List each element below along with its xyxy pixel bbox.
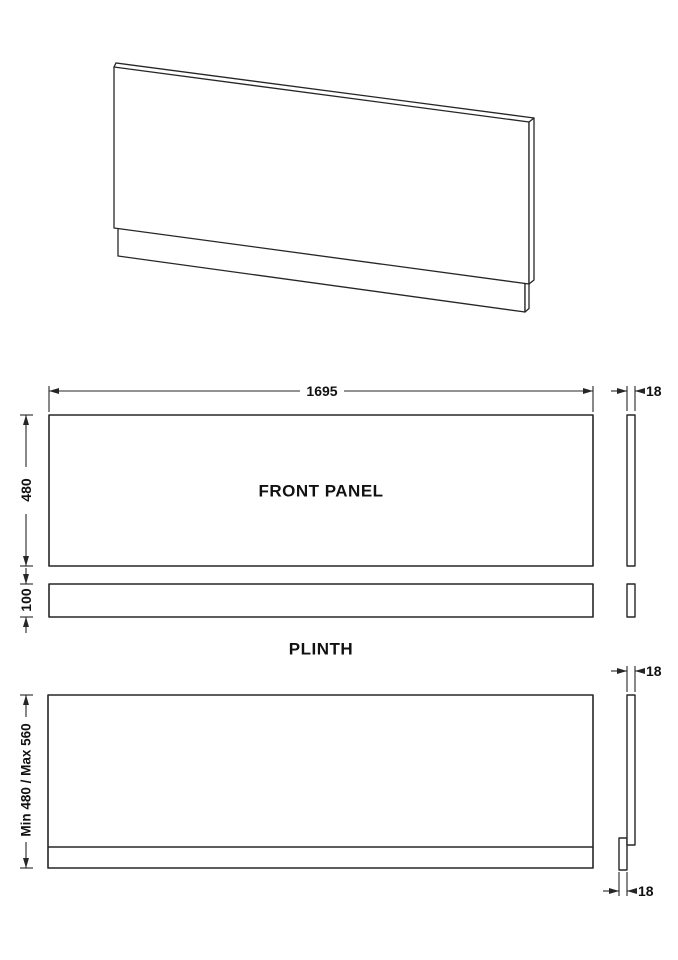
plinth-label: PLINTH [289, 640, 353, 659]
dim-assembled-height: Min 480 / Max 560 [19, 695, 34, 868]
plinth-rect [49, 584, 593, 617]
assembled-height-range-value: Min 480 / Max 560 [19, 723, 34, 836]
front-panel-label: FRONT PANEL [258, 482, 383, 501]
dim-front-panel-height: 480 [18, 415, 34, 566]
dim-assembled-panel-thickness: 18 [611, 663, 662, 692]
front-panel-width-value: 1695 [306, 383, 337, 399]
dim-front-panel-thickness: 18 [611, 383, 662, 411]
drawing-canvas: FRONT PANEL 1695 480 18 [0, 0, 678, 960]
assembled-front-view [48, 695, 593, 868]
front-panel-thickness-value: 18 [646, 383, 662, 399]
assembled-side-view [619, 695, 635, 870]
plinth-height-value: 100 [18, 588, 34, 612]
dim-plinth-height: 100 [18, 568, 34, 633]
front-panel-side-rect [627, 415, 635, 566]
assembled-plinth-thickness-value: 18 [638, 883, 654, 899]
dim-assembled-plinth-thickness: 18 [603, 872, 654, 899]
plinth-side-view [627, 584, 635, 617]
perspective-panel-side-face [529, 118, 534, 284]
front-panel-side-view [627, 415, 635, 566]
assembled-side-plinth-strip [619, 838, 627, 870]
plinth-front-view: PLINTH [49, 584, 593, 659]
dim-front-panel-width: 1695 [49, 383, 593, 412]
bath-panel-technical-drawing: FRONT PANEL 1695 480 18 [0, 0, 678, 960]
assembled-side-panel-strip [627, 695, 635, 845]
front-panel-height-value: 480 [18, 478, 34, 502]
plinth-side-rect [627, 584, 635, 617]
perspective-plinth-side-face [525, 282, 529, 313]
front-panel-front-view: FRONT PANEL [49, 415, 593, 566]
assembled-rect [48, 695, 593, 868]
assembled-panel-thickness-value: 18 [646, 663, 662, 679]
perspective-view [114, 63, 534, 312]
